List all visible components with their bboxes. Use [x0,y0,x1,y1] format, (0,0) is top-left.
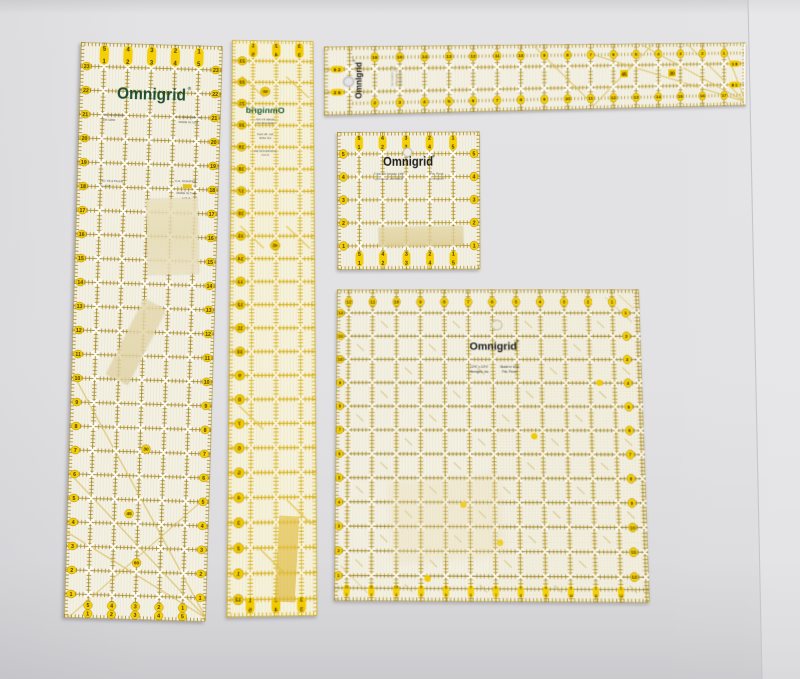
svg-text:4: 4 [157,614,160,620]
svg-text:5: 5 [520,586,522,590]
svg-text:OMNIGRID INC: OMNIGRID INC [255,121,276,125]
svg-text:7: 7 [496,98,499,103]
svg-text:11: 11 [338,333,343,338]
svg-text:11: 11 [631,550,637,555]
svg-text:9: 9 [420,585,422,589]
svg-text:17: 17 [209,212,215,218]
svg-text:12: 12 [346,300,352,305]
svg-text:3: 3 [300,606,303,613]
svg-text:3: 3 [300,597,303,604]
svg-text:3: 3 [570,586,572,590]
svg-text:12: 12 [470,54,476,59]
svg-text:4: 4 [423,100,426,105]
svg-text:20: 20 [239,123,245,129]
svg-text:8 1: 8 1 [732,83,738,88]
svg-text:1: 1 [199,596,202,602]
svg-text:Omnigrid: Omnigrid [383,155,433,169]
svg-text:5: 5 [452,261,455,267]
svg-text:5: 5 [448,99,451,104]
svg-text:8: 8 [74,424,77,430]
svg-text:16: 16 [238,211,244,217]
svg-text:13: 13 [446,55,452,60]
svg-text:2: 2 [275,44,278,50]
svg-text:5: 5 [445,593,447,597]
svg-text:12: 12 [631,574,637,580]
svg-text:10: 10 [569,594,573,598]
svg-text:14: 14 [77,280,83,286]
svg-text:13: 13 [77,304,83,310]
svg-text:10: 10 [630,525,636,530]
svg-text:2: 2 [199,572,202,578]
svg-text:9: 9 [204,404,207,410]
svg-text:4: 4 [274,607,277,614]
svg-text:11: 11 [594,594,598,598]
svg-text:2: 2 [382,261,385,267]
svg-text:3: 3 [71,544,74,550]
svg-text:12: 12 [205,332,211,338]
svg-text:8: 8 [238,397,241,404]
svg-text:3: 3 [298,44,301,50]
svg-text:22: 22 [212,92,218,98]
svg-text:12: 12 [235,597,242,604]
svg-text:4: 4 [110,604,113,610]
svg-text:2: 2 [428,252,431,258]
svg-text:5: 5 [472,151,475,157]
svg-text:10: 10 [518,54,523,59]
svg-text:1: 1 [248,598,252,605]
svg-text:13: 13 [206,308,212,314]
svg-text:12: 12 [345,585,349,589]
svg-text:14: 14 [237,256,243,262]
svg-text:4: 4 [237,495,240,502]
svg-text:10: 10 [338,357,344,362]
svg-text:4: 4 [657,52,660,57]
svg-text:17: 17 [79,208,85,214]
svg-text:2: 2 [473,220,476,226]
svg-text:U.S.A.: U.S.A. [261,153,270,157]
svg-text:8: 8 [204,428,207,434]
svg-text:12½" x 12½": 12½" x 12½" [470,365,488,369]
svg-text:3: 3 [237,520,240,527]
svg-text:5: 5 [86,603,89,609]
svg-text:13: 13 [237,279,243,285]
svg-text:5: 5 [358,136,361,142]
svg-text:Pat. Pend.: Pat. Pend. [430,172,444,176]
svg-text:4: 4 [473,174,476,180]
svg-text:Omnigrid: Omnigrid [117,84,187,105]
svg-text:6: 6 [73,472,76,478]
svg-text:MADE IN USA: MADE IN USA [256,117,275,121]
svg-text:11: 11 [495,54,500,59]
svg-text:12: 12 [76,328,82,334]
svg-text:1: 1 [358,145,361,151]
svg-text:6: 6 [237,446,240,453]
svg-text:8: 8 [566,53,569,58]
svg-text:2: 2 [110,612,113,618]
svg-text:1: 1 [69,592,72,598]
svg-text:3: 3 [398,100,401,105]
svg-text:4: 4 [201,524,204,530]
svg-text:14: 14 [206,284,212,290]
svg-text:3: 3 [679,52,682,57]
svg-text:2: 2 [381,145,384,151]
svg-text:Omnigrid®: Omnigrid® [430,177,445,181]
svg-text:1: 1 [86,612,89,618]
svg-text:4: 4 [275,53,278,59]
svg-text:4: 4 [545,586,547,590]
svg-text:14: 14 [422,55,428,60]
svg-text:NO. 85 3x24: NO. 85 3x24 [257,132,274,136]
svg-text:Omnigrid, Inc.: Omnigrid, Inc. [469,370,489,374]
svg-text:®: ® [352,59,356,62]
svg-text:Made in USA: Made in USA [500,365,520,369]
svg-text:8: 8 [520,593,522,597]
svg-text:6" x 24": 6" x 24" [101,184,111,188]
svg-text:C.H. SCHAFER: C.H. SCHAFER [175,179,197,184]
svg-text:1: 1 [342,244,345,250]
svg-text:10: 10 [74,376,80,382]
svg-text:5: 5 [181,614,184,620]
svg-text:7: 7 [470,585,472,589]
svg-text:2 5: 2 5 [334,91,341,97]
svg-text:1: 1 [252,44,255,50]
svg-text:Omnlgrid: Omnlgrid [354,62,364,99]
svg-text:2: 2 [701,52,704,57]
svg-text:C.H. SCHAFER INC: C.H. SCHAFER INC [175,115,203,120]
svg-text:9: 9 [75,400,78,406]
svg-text:16: 16 [372,55,378,61]
svg-text:8: 8 [445,585,447,589]
svg-text:6: 6 [470,593,472,597]
svg-text:6: 6 [612,53,615,58]
svg-text:1: 1 [358,261,361,267]
svg-text:15: 15 [397,55,403,60]
svg-text:3: 3 [405,252,408,258]
svg-text:5: 5 [237,470,240,477]
svg-text:3: 3 [395,593,397,597]
svg-text:60: 60 [134,561,140,567]
svg-text:2: 2 [342,221,345,227]
svg-text:12: 12 [611,96,616,101]
svg-text:5 2: 5 2 [334,68,341,74]
svg-text:4: 4 [72,520,75,526]
svg-text:12: 12 [237,302,243,308]
svg-text:10: 10 [394,585,398,589]
svg-text:1: 1 [452,252,455,258]
svg-text:19: 19 [238,145,244,151]
svg-text:18: 18 [238,167,244,173]
svg-text:4: 4 [420,593,422,597]
svg-text:Omnigrid: Omnigrid [470,342,518,353]
svg-text:4: 4 [428,145,431,151]
svg-text:19: 19 [81,160,87,166]
svg-text:1 8: 1 8 [732,62,738,67]
svg-text:2: 2 [70,568,73,574]
svg-text:3: 3 [405,261,408,267]
svg-text:1/8 GRID: 1/8 GRID [259,136,271,140]
svg-text:11: 11 [370,300,376,305]
svg-text:23: 23 [84,64,90,70]
svg-text:3: 3 [133,613,136,619]
svg-text:16: 16 [79,232,85,238]
svg-text:23: 23 [213,68,219,74]
svg-text:3: 3 [342,198,345,204]
svg-text:12: 12 [619,594,623,598]
svg-text:30: 30 [669,72,674,77]
svg-text:1/8 GRID: 1/8 GRID [103,118,116,122]
svg-text:12: 12 [338,310,344,315]
svg-text:11: 11 [588,96,593,101]
svg-text:11: 11 [369,585,373,589]
svg-text:15: 15 [207,260,213,266]
svg-text:45: 45 [272,243,278,248]
svg-text:MADE IN USA: MADE IN USA [399,69,403,86]
svg-text:10: 10 [237,349,243,355]
svg-text:15: 15 [678,94,683,99]
svg-text:9: 9 [545,594,547,598]
svg-text:3: 3 [134,605,137,611]
svg-text:1: 1 [181,606,184,612]
svg-text:15: 15 [78,256,84,262]
svg-text:20: 20 [211,140,217,146]
svg-text:Omnigrid: Omnigrid [246,105,285,115]
svg-text:5: 5 [358,252,361,258]
svg-text:6: 6 [495,585,497,589]
svg-text:15: 15 [238,234,244,240]
svg-text:19: 19 [210,164,216,170]
svg-text:4: 4 [381,136,384,142]
svg-text:5: 5 [201,500,204,506]
svg-text:1: 1 [236,571,240,578]
svg-text:1: 1 [723,51,726,56]
svg-text:13: 13 [634,95,639,100]
svg-text:18: 18 [80,184,86,190]
svg-text:11: 11 [237,326,243,332]
svg-text:20: 20 [82,136,88,142]
svg-text:9: 9 [238,373,241,379]
svg-text:6: 6 [472,99,475,104]
svg-text:5: 5 [72,496,75,502]
svg-text:5: 5 [248,607,252,614]
svg-text:9: 9 [543,97,546,102]
svg-text:7: 7 [74,448,77,454]
svg-text:7: 7 [589,53,592,58]
svg-text:7: 7 [203,452,206,458]
svg-text:2: 2 [157,605,160,611]
svg-text:3: 3 [405,136,408,142]
svg-text:11: 11 [75,352,81,358]
svg-text:Pat. Pend.: Pat. Pend. [502,370,517,374]
svg-text:21: 21 [82,112,88,118]
svg-text:5: 5 [635,52,638,57]
svg-text:45: 45 [126,511,132,517]
svg-text:17: 17 [238,189,244,195]
svg-text:3: 3 [298,53,301,59]
svg-text:6: 6 [202,476,205,482]
svg-text:4: 4 [342,175,345,181]
svg-text:23: 23 [239,59,245,65]
svg-text:17: 17 [722,94,727,99]
svg-text:1: 1 [473,243,476,249]
svg-text:3: 3 [473,197,476,203]
svg-text:4: 4 [381,252,384,258]
svg-text:9: 9 [543,53,546,58]
svg-text:21: 21 [211,116,217,122]
svg-text:5: 5 [452,145,455,151]
svg-text:LYNNWOOD WA: LYNNWOOD WA [254,149,276,153]
svg-text:NO. 46 (LT6/24): NO. 46 (LT6/24) [103,113,125,118]
svg-text:10: 10 [565,97,570,102]
svg-text:11: 11 [204,356,210,362]
svg-text:16: 16 [700,94,705,99]
svg-text:22: 22 [83,88,89,94]
svg-text:4: 4 [429,261,432,267]
svg-text:1: 1 [345,592,347,596]
svg-text:21: 21 [239,101,245,107]
svg-text:5: 5 [342,152,345,158]
svg-text:8: 8 [520,98,523,103]
svg-text:5: 5 [251,52,254,58]
svg-text:45: 45 [621,72,626,77]
svg-text:Lynnwood, WA 98037: Lynnwood, WA 98037 [375,177,404,181]
svg-text:2: 2 [370,593,372,597]
svg-text:2: 2 [595,586,597,590]
svg-text:16: 16 [208,236,214,242]
svg-text:22: 22 [239,80,245,86]
svg-text:7: 7 [495,593,497,597]
svg-text:18: 18 [209,188,215,194]
svg-text:®: ® [432,155,435,159]
svg-text:1: 1 [620,586,622,590]
svg-text:30: 30 [143,447,149,453]
svg-text:3: 3 [200,548,203,554]
svg-text:10: 10 [204,380,210,386]
svg-text:2: 2 [428,136,431,142]
svg-text:2: 2 [373,101,376,107]
svg-text:7: 7 [238,421,241,428]
svg-text:10: 10 [394,300,400,305]
svg-text:MADE IN THE: MADE IN THE [177,191,196,196]
svg-text:2: 2 [237,546,240,553]
svg-text:© Randal Schafer 1987: © Randal Schafer 1987 [374,172,406,176]
svg-text:14: 14 [656,95,661,100]
svg-text:1: 1 [452,136,455,142]
svg-text:MADE IN USA: MADE IN USA [179,120,199,125]
svg-text:50: 50 [262,89,268,94]
svg-text:NO. 66 (LT6x24): NO. 66 (LT6x24) [101,179,123,184]
